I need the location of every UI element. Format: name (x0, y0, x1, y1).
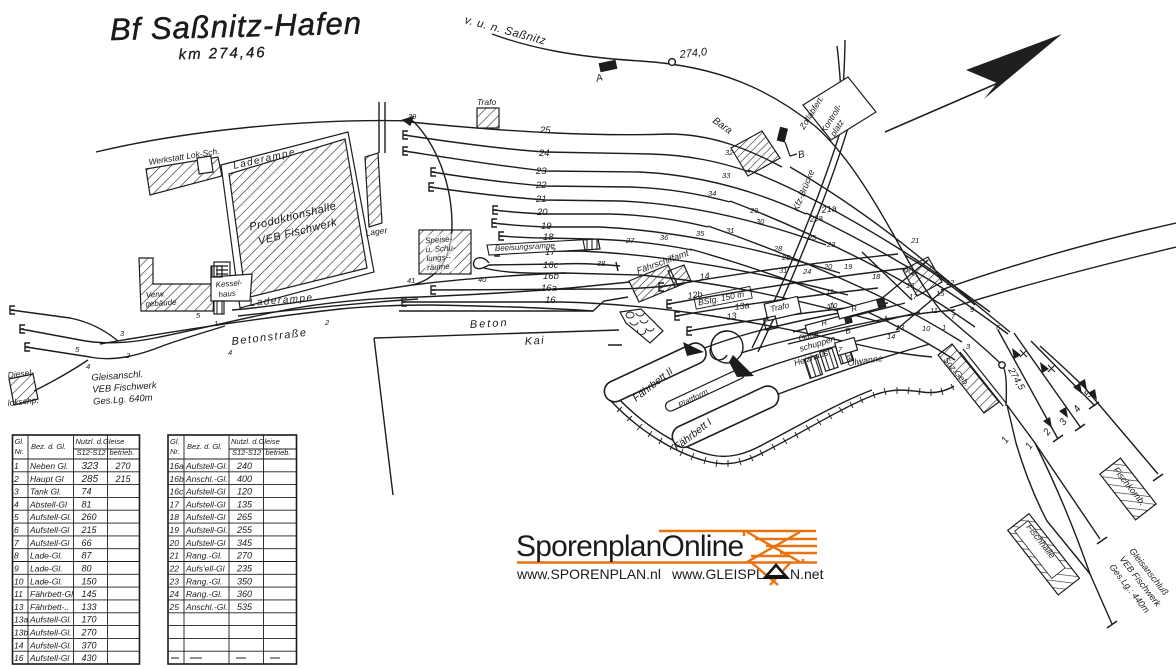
svg-text:Bez. d. Gl.: Bez. d. Gl. (187, 442, 222, 451)
svg-text:16b: 16b (170, 474, 184, 484)
svg-text:150: 150 (82, 576, 97, 586)
svg-text:16: 16 (906, 281, 915, 290)
svg-text:255: 255 (236, 525, 253, 535)
svg-text:Tank Gl.: Tank Gl. (30, 487, 61, 497)
svg-text:16a: 16a (541, 283, 557, 294)
svg-text:323: 323 (82, 461, 99, 472)
svg-text:15: 15 (936, 289, 945, 298)
svg-text:betrieb.: betrieb. (266, 448, 291, 457)
svg-text:235: 235 (236, 564, 253, 574)
svg-text:2: 2 (125, 351, 131, 360)
svg-text:13: 13 (726, 311, 737, 322)
svg-text:Aufstell-Gl.: Aufstell-Gl. (29, 615, 72, 625)
svg-text:Aufstell-Gl.: Aufstell-Gl. (29, 640, 72, 650)
svg-text:25: 25 (539, 125, 551, 136)
svg-text:17: 17 (545, 247, 556, 258)
svg-text:räume: räume (427, 262, 451, 273)
svg-text:133: 133 (82, 602, 97, 612)
svg-text:13b: 13b (14, 628, 28, 638)
svg-text:11: 11 (14, 589, 23, 599)
svg-text:Lade-Gl.: Lade-Gl. (30, 551, 63, 561)
svg-text:25: 25 (169, 602, 180, 612)
svg-text:6: 6 (14, 525, 19, 535)
svg-text:Aufstell-Gl: Aufstell-Gl (185, 538, 226, 548)
svg-text:Beton: Beton (470, 317, 509, 331)
svg-text:Lade-Gl.: Lade-Gl. (30, 576, 63, 586)
svg-text:74: 74 (82, 487, 92, 497)
svg-text:19: 19 (170, 525, 180, 535)
svg-text:260: 260 (81, 512, 97, 522)
svg-text:11: 11 (826, 287, 834, 296)
svg-text:4: 4 (14, 499, 19, 509)
svg-text:145: 145 (82, 589, 98, 599)
svg-text:16: 16 (545, 295, 556, 306)
svg-text:170: 170 (82, 615, 97, 625)
svg-text:24: 24 (538, 148, 550, 159)
svg-text:18: 18 (872, 272, 881, 281)
svg-text:S12-S12: S12-S12 (232, 448, 262, 457)
svg-text:Fährbett-..: Fährbett-.. (30, 602, 69, 612)
svg-text:41: 41 (407, 276, 415, 285)
svg-text:16c: 16c (543, 260, 559, 271)
svg-text:1: 1 (214, 319, 218, 328)
svg-text:3: 3 (14, 487, 19, 497)
svg-text:31: 31 (779, 266, 787, 275)
svg-text:23: 23 (826, 240, 836, 249)
svg-text:12: 12 (946, 278, 955, 287)
svg-text:9: 9 (14, 564, 19, 574)
svg-text:26: 26 (781, 253, 791, 262)
svg-text:Nr.: Nr. (15, 447, 25, 456)
svg-text:Gl.: Gl. (15, 437, 25, 446)
svg-text:Rang.-Gl.: Rang.-Gl. (186, 589, 222, 599)
svg-text:8: 8 (14, 551, 19, 561)
svg-text:Rang.-Gl.: Rang.-Gl. (186, 551, 222, 561)
svg-text:1: 1 (14, 461, 19, 471)
svg-text:2: 2 (324, 318, 330, 327)
svg-text:135: 135 (237, 499, 253, 509)
svg-text:370: 370 (82, 640, 97, 650)
svg-text:215: 215 (115, 474, 132, 484)
svg-text:25: 25 (807, 233, 817, 242)
svg-text:2: 2 (13, 474, 19, 484)
svg-text:38: 38 (597, 259, 606, 268)
svg-text:Trafo: Trafo (477, 97, 496, 107)
svg-text:23: 23 (169, 576, 180, 586)
svg-text:80: 80 (82, 564, 92, 574)
svg-text:N.net: N.net (790, 566, 824, 582)
svg-text:350: 350 (237, 576, 252, 586)
svg-text:36: 36 (660, 233, 669, 242)
svg-text:120: 120 (237, 487, 252, 497)
svg-text:14: 14 (14, 640, 24, 650)
svg-text:13a: 13a (734, 300, 750, 312)
svg-text:Bf Saßnitz-Hafen: Bf Saßnitz-Hafen (109, 6, 362, 48)
svg-text:22: 22 (169, 564, 180, 574)
svg-text:16: 16 (14, 653, 24, 663)
svg-text:22: 22 (535, 180, 547, 191)
svg-text:Rang.-Gl.: Rang.-Gl. (186, 576, 222, 586)
svg-text:29: 29 (749, 206, 759, 215)
svg-text:23: 23 (535, 166, 547, 177)
svg-text:20: 20 (823, 262, 833, 271)
svg-text:14: 14 (699, 271, 710, 282)
svg-text:Aufstell-Gl: Aufstell-Gl (29, 538, 70, 548)
svg-text:Anschl.-Gl.: Anschl.-Gl. (185, 474, 228, 484)
svg-text:14: 14 (887, 332, 895, 341)
svg-text:270: 270 (115, 461, 131, 471)
svg-text:betrieb.: betrieb. (110, 448, 135, 457)
svg-text:13: 13 (896, 323, 905, 332)
svg-text:4: 4 (228, 348, 232, 357)
svg-text:4: 4 (86, 362, 90, 371)
svg-text:Haupt Gl: Haupt Gl (30, 474, 65, 484)
svg-text:Bez. d. Gl.: Bez. d. Gl. (31, 442, 66, 451)
svg-text:Nr.: Nr. (170, 447, 180, 456)
svg-text:11: 11 (930, 306, 938, 315)
svg-text:21: 21 (169, 551, 180, 561)
svg-text:345: 345 (237, 538, 253, 548)
svg-text:Aufstell-Gl.: Aufstell-Gl. (185, 461, 228, 471)
svg-text:24: 24 (169, 589, 180, 599)
svg-text:24: 24 (802, 267, 811, 276)
svg-text:18: 18 (170, 512, 180, 522)
svg-text:19: 19 (844, 262, 853, 271)
svg-text:km 274,46: km 274,46 (178, 44, 266, 63)
svg-text:Nutzl. d.Gleise: Nutzl. d.Gleise (76, 437, 125, 446)
svg-text:33: 33 (722, 171, 731, 180)
svg-text:17: 17 (170, 499, 180, 509)
svg-text:Anschl.-Gl.: Anschl.-Gl. (185, 602, 228, 612)
svg-text:Fährbett-Gl: Fährbett-Gl (30, 589, 74, 599)
svg-text:10: 10 (14, 576, 24, 586)
svg-text:34: 34 (708, 189, 716, 198)
svg-text:Kai: Kai (524, 335, 545, 348)
svg-text:SporenplanOnline: SporenplanOnline (516, 530, 743, 563)
svg-text:Abstell-Gl: Abstell-Gl (29, 499, 68, 509)
svg-text:215: 215 (81, 525, 98, 535)
svg-text:21: 21 (910, 236, 919, 245)
svg-text:430: 430 (82, 653, 97, 663)
svg-text:haus: haus (218, 289, 236, 299)
svg-text:5: 5 (14, 512, 19, 522)
svg-text:20: 20 (169, 538, 180, 548)
svg-text:Aufstell-Gl.: Aufstell-Gl. (29, 512, 72, 522)
svg-text:Neben Gl.: Neben Gl. (30, 461, 68, 471)
svg-text:Aufstell-Gl: Aufstell-Gl (185, 487, 226, 497)
svg-text:www.GLEISPL: www.GLEISPL (671, 566, 764, 582)
svg-text:285: 285 (81, 474, 99, 485)
svg-text:Aufstell-Gl.: Aufstell-Gl. (29, 628, 72, 638)
svg-text:28: 28 (773, 244, 783, 253)
svg-text:Lade-Gl.: Lade-Gl. (30, 564, 63, 574)
svg-text:Gl.: Gl. (170, 437, 180, 446)
svg-text:Aufstell-Gl: Aufstell-Gl (185, 512, 226, 522)
svg-text:270: 270 (236, 551, 252, 561)
svg-text:360: 360 (237, 589, 252, 599)
svg-text:7: 7 (14, 538, 19, 548)
svg-text:400: 400 (237, 474, 252, 484)
svg-text:www.SPORENPLAN.nl: www.SPORENPLAN.nl (516, 566, 661, 582)
svg-text:S12-S12: S12-S12 (77, 448, 107, 457)
svg-text:16b: 16b (543, 271, 559, 282)
svg-text:10: 10 (922, 324, 931, 333)
svg-text:Aufstell-Gl.: Aufstell-Gl. (185, 525, 228, 535)
svg-text:27: 27 (625, 236, 635, 245)
svg-text:39: 39 (408, 112, 417, 121)
svg-text:16c: 16c (170, 487, 184, 497)
svg-text:31: 31 (726, 226, 734, 235)
svg-text:240: 240 (236, 461, 252, 471)
svg-text:13a: 13a (14, 615, 28, 625)
svg-text:21: 21 (535, 194, 547, 205)
svg-text:17: 17 (909, 292, 918, 301)
svg-text:265: 265 (236, 512, 253, 522)
svg-text:20: 20 (536, 207, 548, 218)
svg-text:32: 32 (725, 148, 734, 157)
svg-text:Aufstell-Gl: Aufstell-Gl (185, 499, 226, 509)
svg-text:40: 40 (478, 275, 487, 284)
svg-text:Aufstell-Gl: Aufstell-Gl (29, 653, 70, 663)
svg-text:35: 35 (696, 229, 705, 238)
svg-text:87: 87 (82, 551, 93, 561)
svg-text:Aufs'ell-Gl: Aufs'ell-Gl (185, 564, 226, 574)
svg-text:270: 270 (81, 628, 97, 638)
svg-text:19: 19 (541, 221, 552, 232)
svg-text:535: 535 (237, 602, 253, 612)
svg-text:16a: 16a (170, 461, 184, 471)
svg-text:30: 30 (756, 217, 765, 226)
svg-text:12b: 12b (687, 289, 703, 301)
svg-text:18: 18 (543, 232, 554, 243)
svg-text:13: 13 (14, 602, 24, 612)
svg-text:1: 1 (942, 323, 946, 332)
svg-text:Aufstell-Gl: Aufstell-Gl (29, 525, 70, 535)
svg-text:81: 81 (82, 499, 92, 509)
svg-text:66: 66 (82, 538, 92, 548)
svg-text:Nutzl. d.Gleise: Nutzl. d.Gleise (231, 437, 280, 446)
